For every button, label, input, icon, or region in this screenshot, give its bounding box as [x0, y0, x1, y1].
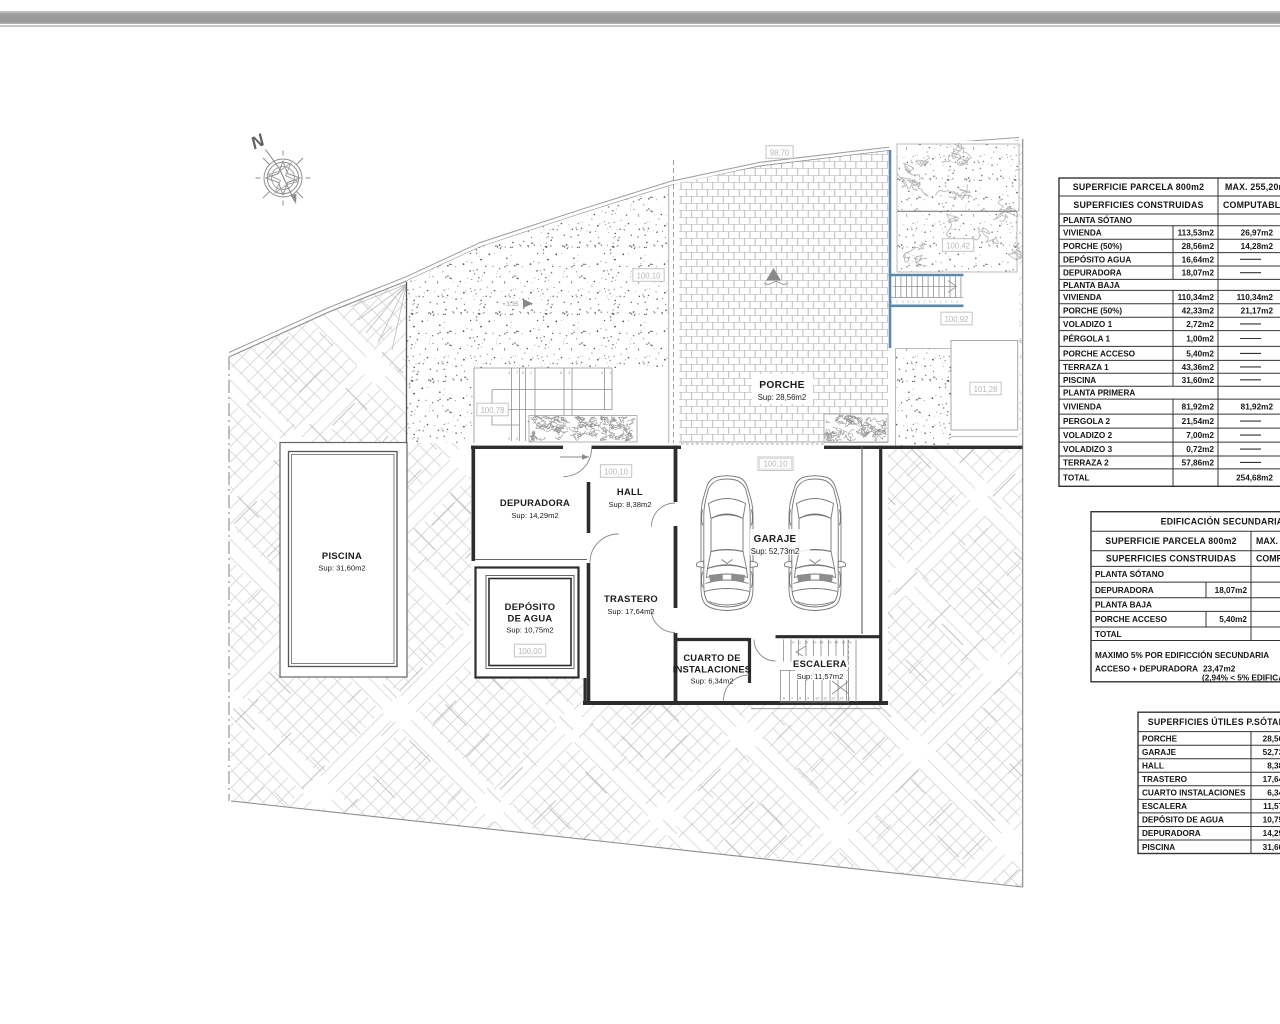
svg-text:TRASTERO: TRASTERO — [604, 593, 658, 604]
svg-text:Sup: 11,57m2: Sup: 11,57m2 — [797, 672, 844, 681]
svg-text:3: 3 — [902, 300, 904, 304]
svg-text:PORCHE (50%): PORCHE (50%) — [1063, 307, 1122, 316]
svg-text:12: 12 — [804, 640, 809, 645]
svg-text:TOTAL: TOTAL — [1095, 630, 1122, 639]
svg-text:VOLADIZO 3: VOLADIZO 3 — [1063, 445, 1113, 454]
svg-text:Sup: 52,73m2: Sup: 52,73m2 — [751, 547, 800, 556]
svg-text:PLANTA SÓTANO: PLANTA SÓTANO — [1063, 214, 1133, 225]
svg-text:110,34m2: 110,34m2 — [1237, 293, 1274, 302]
svg-text:Sup: 6,34m2: Sup: 6,34m2 — [690, 677, 733, 686]
svg-text:11,57m2: 11,57m2 — [1263, 802, 1280, 811]
svg-text:16: 16 — [834, 640, 839, 645]
svg-text:98,70: 98,70 — [770, 148, 790, 157]
svg-text:DEPURADORA: DEPURADORA — [1095, 586, 1154, 595]
svg-text:100,10: 100,10 — [604, 467, 629, 476]
svg-text:28,56m2: 28,56m2 — [1182, 242, 1215, 251]
svg-text:COMPUTABLES: COMPUTABLES — [1223, 200, 1280, 210]
svg-text:10: 10 — [790, 640, 795, 645]
svg-text:PORCHE ACCESO: PORCHE ACCESO — [1095, 615, 1168, 624]
svg-text:254,68m2: 254,68m2 — [1236, 474, 1273, 483]
svg-text:81,92m2: 81,92m2 — [1241, 403, 1274, 412]
svg-text:Sup: 31,60m2: Sup: 31,60m2 — [318, 564, 365, 573]
svg-text:PÉRGOLA 1: PÉRGOLA 1 — [1063, 334, 1110, 344]
svg-text:18,07m2: 18,07m2 — [1182, 269, 1215, 278]
svg-text:TERRAZA 2: TERRAZA 2 — [1063, 458, 1109, 467]
svg-text:17: 17 — [841, 640, 846, 645]
svg-text:28,56m2: 28,56m2 — [1263, 734, 1280, 743]
svg-text:2: 2 — [896, 300, 898, 304]
svg-text:14: 14 — [846, 696, 851, 701]
svg-text:SUPERFICIE PARCELA 800m2: SUPERFICIE PARCELA 800m2 — [1105, 536, 1236, 546]
svg-text:4: 4 — [907, 300, 909, 304]
svg-text:DEPÓSITO DE AGUA: DEPÓSITO DE AGUA — [1142, 814, 1224, 825]
svg-text:18: 18 — [847, 640, 852, 645]
svg-text:52,73m2: 52,73m2 — [1263, 748, 1280, 757]
svg-text:INSTALACIONES: INSTALACIONES — [673, 664, 751, 675]
svg-text:1: 1 — [940, 300, 942, 304]
svg-text:VIVIENDA: VIVIENDA — [1063, 403, 1102, 412]
svg-text:1,00m2: 1,00m2 — [1186, 335, 1214, 344]
svg-text:SUPERFICIES CONSTRUIDAS: SUPERFICIES CONSTRUIDAS — [1073, 200, 1203, 210]
svg-text:100,00: 100,00 — [518, 647, 543, 656]
svg-text:7,00m2: 7,00m2 — [1186, 431, 1214, 440]
svg-text:5,40m2: 5,40m2 — [1186, 349, 1214, 358]
svg-text:57,86m2: 57,86m2 — [1182, 458, 1215, 467]
svg-text:100,78: 100,78 — [481, 406, 505, 415]
svg-text:MAX. 255,20m2: MAX. 255,20m2 — [1256, 536, 1280, 546]
svg-text:PORCHE: PORCHE — [759, 380, 804, 391]
svg-text:23,47m2: 23,47m2 — [1203, 665, 1236, 674]
svg-text:8: 8 — [929, 300, 931, 304]
svg-text:HALL: HALL — [1142, 762, 1164, 771]
svg-text:ESCALERA: ESCALERA — [1142, 802, 1187, 811]
svg-text:10,75m2: 10,75m2 — [1263, 816, 1280, 825]
svg-text:SUPERFICIES ÚTILES P.SÓTANO: SUPERFICIES ÚTILES P.SÓTANO — [1148, 716, 1280, 727]
svg-text:Sup: 28,56m2: Sup: 28,56m2 — [758, 393, 807, 402]
svg-text:ESCALERA: ESCALERA — [793, 658, 847, 669]
svg-text:DEPURADORA: DEPURADORA — [500, 497, 570, 508]
svg-text:DEPÓSITO AGUA: DEPÓSITO AGUA — [1063, 253, 1131, 264]
svg-text:N: N — [247, 129, 267, 153]
svg-text:100,10: 100,10 — [764, 460, 789, 469]
svg-text:4: 4 — [956, 300, 958, 304]
svg-text:100,42: 100,42 — [946, 241, 970, 250]
svg-text:PLANTA PRIMERA: PLANTA PRIMERA — [1063, 389, 1135, 398]
svg-text:HALL: HALL — [617, 486, 643, 497]
svg-text:43,36m2: 43,36m2 — [1182, 363, 1215, 372]
svg-text:COMPUTABLES: COMPUTABLES — [1256, 554, 1280, 564]
svg-text:PISCINA: PISCINA — [1142, 843, 1175, 852]
svg-text:101,28: 101,28 — [974, 385, 998, 394]
svg-text:DE AGUA: DE AGUA — [508, 613, 553, 624]
svg-text:SUPERFICIE PARCELA 800m2: SUPERFICIE PARCELA 800m2 — [1073, 182, 1204, 192]
svg-text:2: 2 — [945, 300, 947, 304]
svg-text:VOLADIZO 2: VOLADIZO 2 — [1063, 431, 1113, 440]
svg-text:31,60m2: 31,60m2 — [1263, 843, 1280, 852]
svg-text:110,34m2: 110,34m2 — [1178, 293, 1215, 302]
svg-text:VOLADIZO 1: VOLADIZO 1 — [1063, 320, 1113, 329]
svg-text:Sup: 17,64m2: Sup: 17,64m2 — [607, 607, 654, 616]
svg-text:Sup: 14,29m2: Sup: 14,29m2 — [511, 511, 558, 520]
svg-text:113,53m2: 113,53m2 — [1178, 229, 1215, 238]
svg-text:15: 15 — [827, 640, 832, 645]
svg-text:MAX. 255,20m2: MAX. 255,20m2 — [1225, 182, 1280, 192]
svg-text:5,40m2: 5,40m2 — [1219, 615, 1247, 624]
svg-text:PORCHE: PORCHE — [1142, 734, 1178, 743]
svg-text:21,54m2: 21,54m2 — [1182, 417, 1215, 426]
svg-text:12: 12 — [831, 696, 836, 701]
svg-text:17,64m2: 17,64m2 — [1263, 775, 1280, 784]
svg-text:PISCINA: PISCINA — [1063, 376, 1096, 385]
svg-text:81,92m2: 81,92m2 — [1182, 403, 1215, 412]
svg-text:DEPÓSITO: DEPÓSITO — [505, 601, 556, 612]
svg-text:26,97m2: 26,97m2 — [1241, 229, 1274, 238]
svg-text:EDIFICACIÓN SECUNDARIA: EDIFICACIÓN SECUNDARIA — [1161, 516, 1280, 527]
svg-text:6: 6 — [918, 300, 920, 304]
svg-text:DEPURADORA: DEPURADORA — [1063, 269, 1122, 278]
svg-text:MAXIMO 5% POR EDIFICCIÓN SECUN: MAXIMO 5% POR EDIFICCIÓN SECUNDARIA — [1095, 649, 1269, 660]
svg-text:100,10: 100,10 — [637, 271, 662, 280]
svg-text:0,72m2: 0,72m2 — [1186, 445, 1214, 454]
svg-text:ACCESO + DEPURADORA: ACCESO + DEPURADORA — [1095, 665, 1198, 674]
svg-text:Sup: 8,38m2: Sup: 8,38m2 — [608, 500, 651, 509]
svg-text:3: 3 — [951, 300, 953, 304]
svg-text:8,38m2: 8,38m2 — [1267, 762, 1280, 771]
svg-text:CUARTO INSTALACIONES: CUARTO INSTALACIONES — [1142, 789, 1246, 798]
svg-text:10: 10 — [815, 696, 820, 701]
svg-text:2,72m2: 2,72m2 — [1186, 320, 1214, 329]
svg-text:PISCINA: PISCINA — [322, 550, 362, 561]
svg-text:3,35: 3,35 — [506, 301, 519, 308]
svg-text:(2,94% < 5% EDIFICACION): (2,94% < 5% EDIFICACION) — [1202, 674, 1280, 683]
svg-text:31,60m2: 31,60m2 — [1182, 376, 1215, 385]
svg-text:9: 9 — [934, 300, 936, 304]
svg-text:14,29m2: 14,29m2 — [1263, 829, 1280, 838]
svg-text:7: 7 — [924, 300, 926, 304]
svg-text:SUPERFICIES CONSTRUIDAS: SUPERFICIES CONSTRUIDAS — [1106, 554, 1236, 564]
svg-text:VIVIENDA: VIVIENDA — [1063, 293, 1102, 302]
svg-text:CUARTO DE: CUARTO DE — [683, 652, 740, 663]
svg-text:5: 5 — [913, 300, 915, 304]
svg-text:6,34m2: 6,34m2 — [1267, 789, 1280, 798]
svg-text:PORCHE (50%): PORCHE (50%) — [1063, 242, 1122, 251]
svg-text:PLANTA BAJA: PLANTA BAJA — [1063, 281, 1120, 290]
svg-text:16,64m2: 16,64m2 — [1182, 255, 1215, 264]
svg-text:PLANTA SÓTANO: PLANTA SÓTANO — [1095, 568, 1165, 579]
svg-text:TERRAZA 1: TERRAZA 1 — [1063, 363, 1109, 372]
svg-text:14: 14 — [819, 640, 824, 645]
svg-text:TRASTERO: TRASTERO — [1142, 775, 1188, 784]
svg-text:18,07m2: 18,07m2 — [1215, 586, 1248, 595]
svg-text:VIVIENDA: VIVIENDA — [1063, 229, 1102, 238]
svg-text:PORCHE ACCESO: PORCHE ACCESO — [1063, 349, 1136, 358]
svg-text:Sup: 10,75m2: Sup: 10,75m2 — [506, 626, 553, 635]
svg-text:42,33m2: 42,33m2 — [1182, 307, 1215, 316]
svg-text:GARAJE: GARAJE — [754, 534, 797, 545]
svg-text:DEPURADORA: DEPURADORA — [1142, 829, 1201, 838]
svg-text:PLANTA BAJA: PLANTA BAJA — [1095, 601, 1152, 610]
svg-text:13: 13 — [812, 640, 817, 645]
svg-text:14,28m2: 14,28m2 — [1241, 242, 1274, 251]
svg-text:13: 13 — [839, 696, 844, 701]
svg-text:100,92: 100,92 — [945, 315, 969, 324]
svg-text:21,17m2: 21,17m2 — [1241, 307, 1274, 316]
svg-text:TOTAL: TOTAL — [1063, 474, 1090, 483]
svg-text:PERGOLA 2: PERGOLA 2 — [1063, 417, 1110, 426]
svg-text:GARAJE: GARAJE — [1142, 748, 1177, 757]
